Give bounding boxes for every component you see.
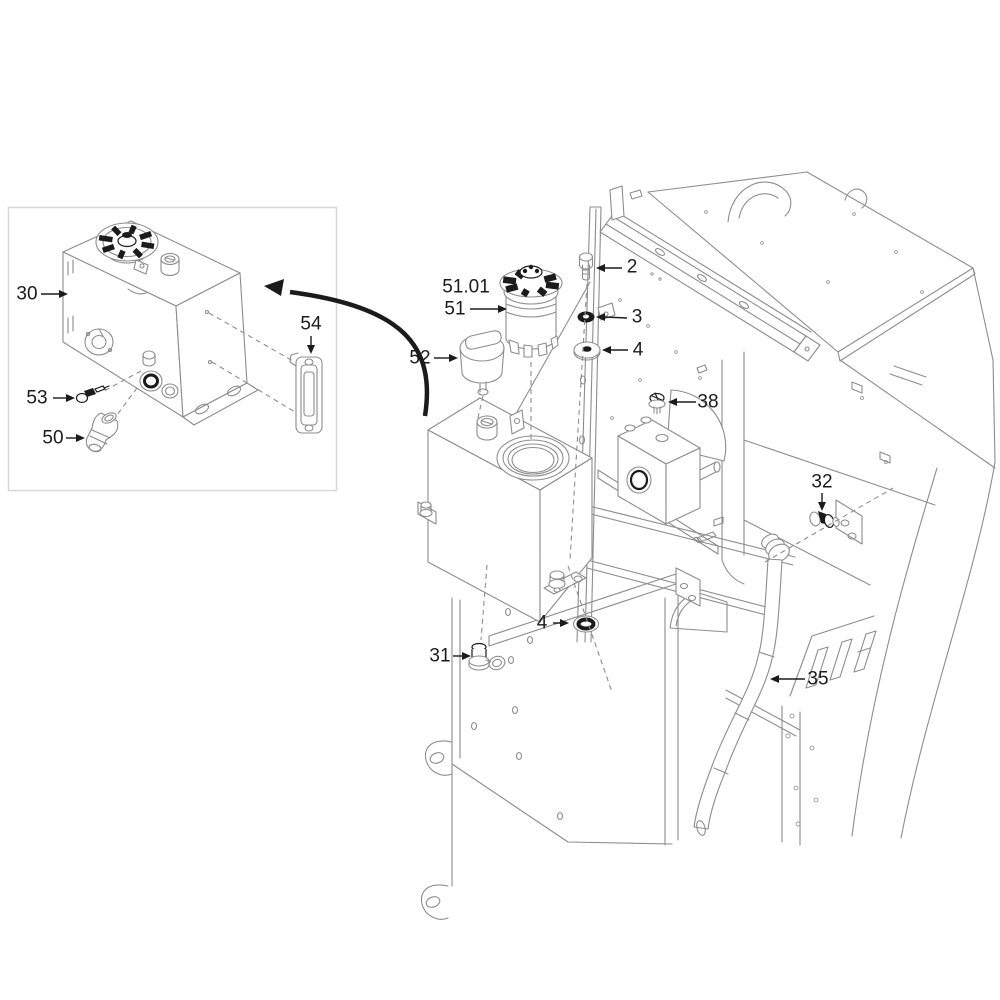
lock-washer-3 [578, 312, 595, 323]
callout-30: 30 [16, 285, 37, 304]
fitting-32 [808, 511, 840, 528]
tank-filler-ring [497, 436, 569, 480]
callout-52: 52 [409, 349, 430, 368]
callout-4-lower: 4 [537, 614, 548, 633]
drain-hose [694, 531, 793, 836]
callout-32: 32 [811, 473, 832, 492]
washer-4-upper [574, 342, 600, 360]
bolt-2 [580, 253, 593, 280]
callout-38: 38 [697, 393, 718, 412]
callout-2: 2 [627, 258, 638, 277]
callout-35: 35 [807, 670, 828, 689]
parts-diagram-canvas: 30 54 53 50 51.01 51 52 2 3 4 38 32 31 4… [0, 0, 1000, 1000]
diagram-art [0, 0, 1000, 1000]
filler-cap [460, 331, 504, 395]
callout-50: 50 [42, 429, 63, 448]
return-filter [500, 265, 562, 357]
drain-plug-31 [469, 644, 507, 672]
callout-3: 3 [632, 308, 643, 327]
hydraulic-tank [418, 282, 592, 622]
callout-4-upper: 4 [633, 341, 644, 360]
callout-54: 54 [300, 315, 321, 334]
callout-51-01: 51.01 [442, 278, 490, 297]
callout-31: 31 [429, 647, 450, 666]
callout-51: 51 [444, 300, 465, 319]
callout-53: 53 [26, 389, 47, 408]
